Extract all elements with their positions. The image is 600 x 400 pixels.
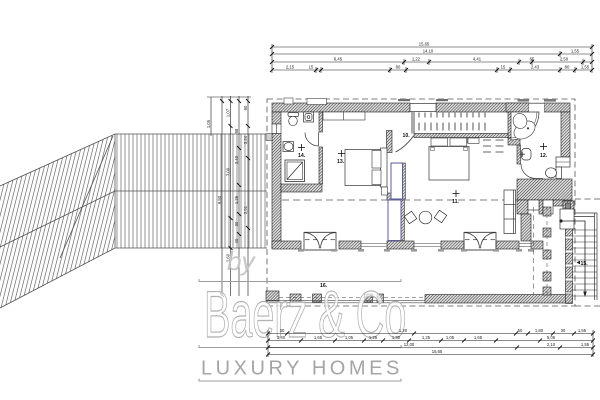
svg-text:98: 98: [234, 128, 239, 133]
svg-text:15.: 15.: [581, 261, 589, 267]
svg-text:30: 30: [280, 328, 285, 333]
svg-text:50: 50: [518, 328, 523, 333]
svg-text:2,50: 2,50: [560, 57, 569, 62]
svg-text:12.: 12.: [540, 153, 548, 159]
svg-text:by: by: [227, 246, 256, 276]
svg-text:15: 15: [501, 65, 506, 70]
svg-text:3,24: 3,24: [243, 135, 248, 144]
svg-text:1,55: 1,55: [581, 65, 590, 70]
svg-text:2,15: 2,15: [286, 65, 295, 70]
svg-text:7,00: 7,00: [226, 167, 231, 176]
svg-text:1,55: 1,55: [581, 342, 590, 347]
svg-text:4,41: 4,41: [473, 57, 482, 62]
svg-text:6,45: 6,45: [334, 57, 343, 62]
svg-text:30: 30: [234, 221, 239, 226]
svg-text:14,10: 14,10: [423, 49, 434, 54]
svg-text:1,55: 1,55: [578, 328, 587, 333]
svg-text:1,22: 1,22: [412, 57, 421, 62]
svg-text:12,00: 12,00: [404, 342, 415, 347]
svg-text:2,43: 2,43: [531, 65, 540, 70]
svg-text:1,55: 1,55: [571, 49, 580, 54]
svg-text:14.: 14.: [298, 153, 306, 159]
svg-text:15,65: 15,65: [419, 42, 430, 47]
svg-text:LUXURY HOMES: LUXURY HOMES: [201, 358, 403, 380]
svg-text:1,05: 1,05: [206, 119, 211, 128]
svg-text:1,05: 1,05: [345, 335, 354, 340]
svg-text:10.: 10.: [403, 133, 411, 139]
svg-text:2,40: 2,40: [234, 155, 239, 164]
svg-text:2,10: 2,10: [547, 342, 556, 347]
svg-text:30: 30: [561, 328, 566, 333]
svg-text:1,30: 1,30: [392, 335, 401, 340]
svg-text:80: 80: [565, 65, 570, 70]
svg-text:15,65: 15,65: [432, 349, 443, 354]
svg-text:9,50: 9,50: [217, 195, 222, 204]
svg-text:15: 15: [309, 65, 314, 70]
svg-text:2,51: 2,51: [243, 205, 248, 214]
svg-text:11.: 11.: [452, 199, 459, 205]
svg-text:1,65: 1,65: [314, 335, 323, 340]
svg-text:1,40: 1,40: [277, 335, 286, 340]
svg-text:13.: 13.: [337, 159, 345, 165]
svg-text:1,20: 1,20: [399, 328, 408, 333]
svg-text:1,25: 1,25: [369, 335, 378, 340]
svg-text:1,65: 1,65: [474, 335, 483, 340]
svg-text:1,05: 1,05: [446, 335, 455, 340]
svg-text:1,80: 1,80: [535, 328, 544, 333]
svg-text:40: 40: [234, 238, 239, 243]
svg-text:1,25: 1,25: [422, 335, 431, 340]
svg-text:90: 90: [243, 105, 248, 110]
svg-text:65: 65: [530, 57, 535, 62]
svg-text:80: 80: [396, 65, 401, 70]
svg-text:5,05: 5,05: [547, 335, 556, 340]
svg-text:1,25: 1,25: [234, 195, 239, 204]
svg-text:1,07: 1,07: [226, 108, 231, 117]
